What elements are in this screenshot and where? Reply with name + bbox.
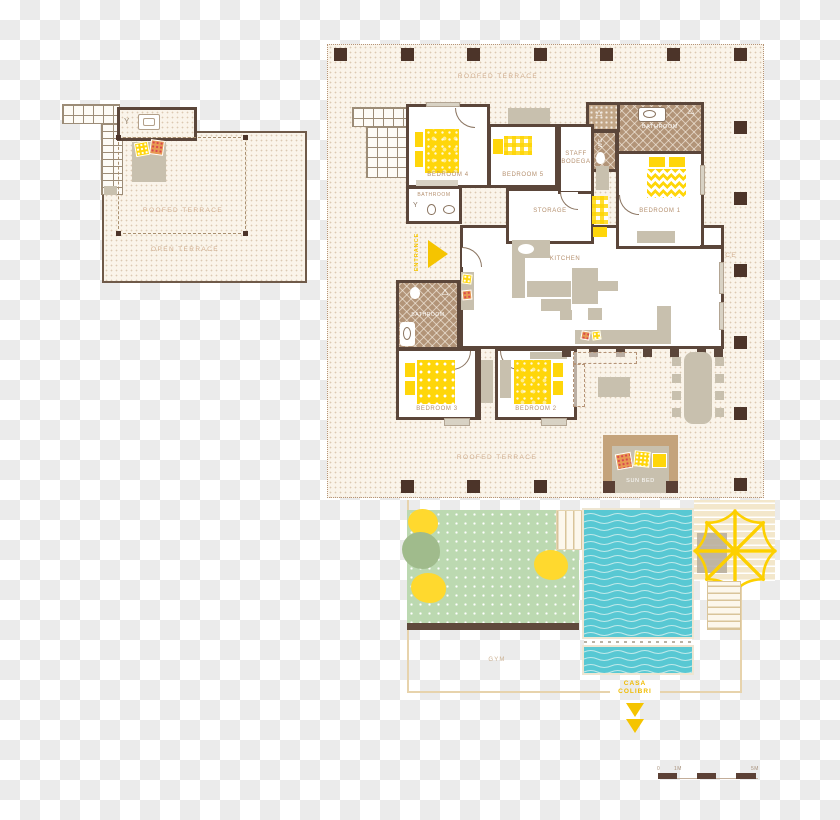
column-small: [643, 349, 652, 357]
stool: [588, 308, 602, 320]
hall-rug: [596, 166, 609, 190]
villa-name: CASA COLIBRI: [600, 680, 670, 697]
scale-bar-segment: [658, 773, 677, 779]
rug: [416, 180, 458, 186]
shower-icon: △: [442, 287, 448, 296]
room-label-bedroom3: BEDROOM 3: [396, 406, 478, 414]
bed-pillow: [552, 362, 564, 378]
bed-pillow: [404, 380, 416, 396]
bathtub-basin-icon: [403, 327, 411, 340]
linen-stool: [593, 227, 607, 237]
bed-pillow: [668, 156, 686, 168]
toilet-icon: [410, 287, 420, 299]
bed-bedroom1: [647, 169, 686, 198]
kitchen-island: [527, 281, 571, 297]
roofed-terrace-outline: [118, 137, 246, 234]
column: [467, 480, 480, 493]
wall-segment: [700, 245, 724, 249]
direction-arrow-icon: [626, 719, 644, 733]
column: [734, 121, 747, 134]
bench-pillow: [461, 273, 472, 284]
toilet-icon: [596, 152, 605, 164]
chair: [715, 408, 724, 417]
linen-shelf: [592, 196, 608, 224]
room-label-bedroom5: BEDROOM 5: [488, 172, 558, 180]
chair: [715, 357, 724, 366]
bench-pillow: [462, 290, 473, 301]
outline-corner: [116, 231, 121, 236]
bush-yellow: [534, 550, 568, 580]
upper-pergola: [62, 104, 120, 124]
stool: [560, 310, 572, 320]
column: [534, 480, 547, 493]
window: [426, 102, 460, 107]
pool-water: [584, 647, 692, 673]
villa-name-line2: COLIBRI: [600, 688, 670, 696]
column-small: [562, 349, 571, 357]
shower-icon: △: [688, 106, 694, 115]
sink-icon: [443, 205, 455, 214]
closet: [637, 231, 675, 243]
bed-pillow: [552, 380, 564, 396]
chair: [672, 357, 681, 366]
villa-name-line1: CASA: [600, 680, 670, 688]
pool-water: [584, 510, 692, 637]
window: [719, 262, 724, 294]
pool-deck-ladder: [556, 510, 583, 550]
column: [734, 48, 747, 61]
entrance-label: ENTRANCE: [414, 222, 424, 282]
column: [734, 336, 747, 349]
coffee-table: [598, 377, 630, 397]
column: [467, 48, 480, 61]
room-label-bathroom-lower: BATHROOM: [396, 312, 460, 318]
garden-stairs: [707, 581, 741, 630]
chair: [672, 391, 681, 400]
outline-corner: [243, 135, 248, 140]
closet: [508, 108, 550, 124]
bed-pillow: [404, 362, 416, 378]
sofa-pillow: [591, 330, 601, 340]
bush-yellow: [411, 573, 446, 603]
gym-label: GYM: [457, 657, 537, 663]
table-extension: [598, 281, 618, 291]
kitchen-sink-icon: [518, 244, 534, 254]
column: [734, 264, 747, 277]
room-label-bedroom1: BEDROOM 1: [616, 208, 704, 216]
window: [700, 165, 705, 195]
column-small: [670, 349, 679, 357]
chair: [672, 374, 681, 383]
stair-landing: [104, 186, 117, 195]
column: [734, 192, 747, 205]
room-label-bedroom4: BEDROOM 4: [406, 172, 490, 180]
outdoor-dining-table: [684, 352, 712, 424]
bed-bedroom2: [514, 360, 551, 404]
pergola-trellis: [352, 107, 408, 127]
direction-arrow-icon: [626, 703, 644, 717]
garden-edge: [407, 623, 579, 630]
sofa-pillow: [580, 330, 590, 340]
terrace-label-bottom: ROOFED TERRACE: [447, 454, 547, 461]
scale-bar-segment: [736, 773, 756, 779]
bed-bedroom5: [504, 136, 532, 155]
scale-tick-1m: 1M: [674, 766, 682, 772]
bed-bedroom3: [417, 360, 455, 404]
outline-corner: [243, 231, 248, 236]
staff-label-line1: STAFF: [552, 151, 600, 159]
sunbed-pillow: [633, 450, 651, 468]
pergola-trellis: [366, 126, 408, 178]
room-label-bathroom-top: BATHROOM: [616, 124, 704, 131]
column-small: [714, 349, 723, 357]
bathtub-basin-icon: [643, 110, 656, 118]
sofa: [657, 306, 671, 332]
closet: [481, 360, 493, 403]
entrance-arrow-icon: [428, 240, 448, 268]
upper-open-terrace-label: OPEN TERRACE: [135, 246, 235, 253]
scale-bar-segment: [697, 773, 716, 779]
bed-pillow: [414, 131, 424, 148]
column: [600, 48, 613, 61]
column: [334, 48, 347, 61]
swimming-pool: [582, 508, 694, 639]
chair: [672, 408, 681, 417]
table-inner-icon: [143, 118, 155, 126]
dining-table-small: [572, 268, 598, 304]
glass-icon: Y: [413, 202, 418, 209]
room-label-bathroom-mid: BATHROOM: [406, 192, 462, 198]
room-label-bedroom2: BEDROOM 2: [495, 406, 577, 414]
column: [667, 48, 680, 61]
bed-pillow: [492, 138, 504, 155]
sunbed-label: SUN BED: [603, 478, 678, 485]
window: [719, 302, 724, 330]
column: [734, 407, 747, 420]
outdoor-sofa-outline: [573, 364, 585, 407]
scale-tick-5m: 5M: [751, 766, 759, 772]
staff-label-line2: BODEGA: [552, 159, 600, 167]
bed-pillow: [414, 150, 424, 168]
bush-green: [402, 532, 440, 569]
storage-room: [506, 188, 594, 244]
closet: [500, 360, 511, 398]
grounds-border-bottom: [407, 691, 610, 693]
room-label-storage: STORAGE: [506, 208, 594, 216]
chair: [715, 391, 724, 400]
outdoor-sofa-outline: [573, 352, 637, 364]
terrace-label-top: ROOFED TERRACE: [448, 73, 548, 80]
column: [401, 48, 414, 61]
upper-roofed-terrace-label: ROOFED TERRACE: [133, 207, 233, 214]
bed-pillow: [648, 156, 666, 168]
column: [401, 480, 414, 493]
glass-icon: Y: [124, 117, 129, 126]
sunbed-pillow: [615, 452, 634, 471]
column: [534, 48, 547, 61]
terrace-door-threshold: [444, 418, 470, 426]
outline-corner: [116, 135, 121, 140]
floor-plan-canvas: ROOFED TERRACE ROOFED TERRACE ROOFED TER…: [0, 0, 840, 820]
bed-bedroom4: [425, 129, 459, 173]
shower-icon: △: [596, 108, 602, 117]
scale-tick-0: 0: [657, 766, 660, 772]
chair: [715, 374, 724, 383]
toilet-icon: [427, 204, 436, 215]
column: [734, 478, 747, 491]
grounds-border-bottom: [660, 691, 742, 693]
terrace-door-threshold: [541, 418, 567, 426]
kitchen-counter: [512, 258, 525, 298]
swimming-pool-shallow: [582, 645, 694, 675]
sunbed-pillow: [652, 453, 667, 468]
